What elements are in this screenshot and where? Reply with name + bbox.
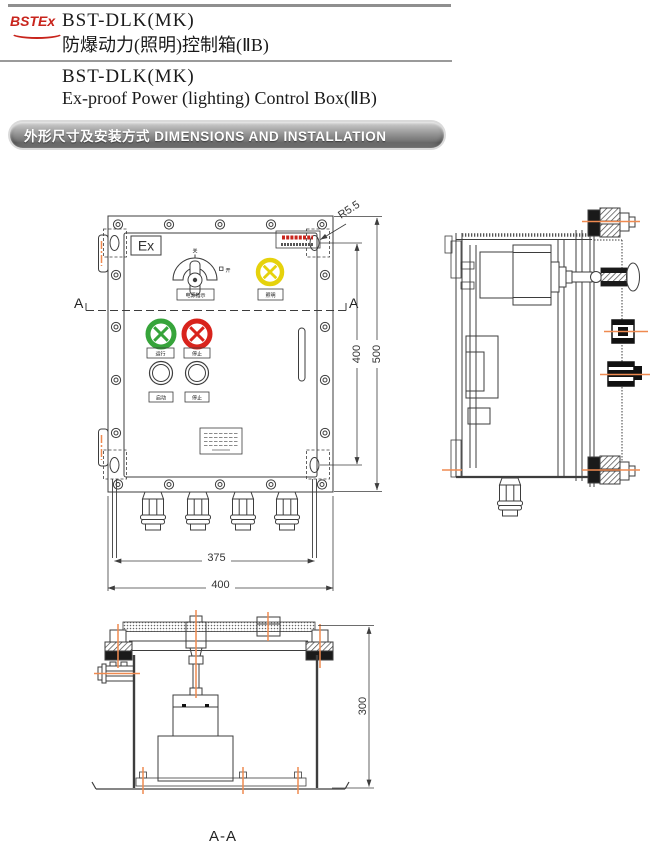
- section-marker-right: A: [349, 295, 359, 311]
- side-switch-assembly: [480, 245, 640, 305]
- push-button-stop: 停止: [185, 362, 209, 403]
- dim-inner-height: 400: [351, 345, 363, 363]
- side-internal-components: [466, 336, 498, 424]
- selector-on-mark: 开: [225, 268, 230, 274]
- lamp-red-label: 停止: [192, 351, 202, 358]
- lamp-green-label: 运行: [155, 351, 165, 358]
- nameplate: [200, 428, 242, 454]
- section-marker-left: A: [74, 295, 84, 311]
- door-slot: [299, 328, 306, 381]
- ex-marking: Ex: [131, 236, 161, 255]
- door-outline: [124, 233, 317, 477]
- selector-label: 电源指示: [185, 292, 205, 299]
- side-view-drawing: [442, 208, 650, 516]
- section-centerlines: [94, 610, 320, 794]
- lamp-yellow-label: 照明: [265, 293, 275, 299]
- technical-drawing: Ex 关 开 电源指示: [0, 0, 650, 856]
- section-view-title: A-A: [209, 828, 237, 845]
- dim-outer-height: 500: [371, 345, 383, 363]
- indicator-lamp-green: 运行: [147, 321, 174, 358]
- section-cut-line: A A: [74, 295, 359, 311]
- side-lamp-assemblies: [608, 320, 642, 386]
- side-bottom-gland: [498, 478, 523, 516]
- dim-depth: 300: [357, 697, 369, 715]
- enclosure-outline: [108, 216, 333, 492]
- dim-inner-width: 375: [207, 552, 225, 564]
- selector-off-mark: 关: [192, 248, 197, 255]
- push-button-start: 启动: [149, 362, 173, 403]
- selector-switch: 关 开 电源指示: [173, 248, 231, 301]
- dim-corner-radius: R5.5: [336, 199, 362, 222]
- button-stop-label: 停止: [192, 395, 202, 402]
- side-door-bolts: [588, 208, 635, 484]
- dim-outer-width: 400: [211, 579, 229, 591]
- ex-marking-text: Ex: [138, 238, 154, 254]
- cable-glands: [141, 492, 300, 530]
- front-view-drawing: Ex 关 开 电源指示: [74, 199, 383, 591]
- warning-plate: [276, 231, 320, 248]
- indicator-lamp-yellow: 照明: [258, 260, 283, 300]
- button-start-label: 启动: [156, 395, 166, 402]
- section-side-gland: [98, 662, 134, 683]
- section-internal-boxes: [136, 695, 306, 786]
- section-view-drawing: 300 A-A: [92, 610, 374, 845]
- hinges: [99, 235, 109, 466]
- section-corner-bolts: [105, 630, 333, 660]
- indicator-lamp-red: 停止: [184, 321, 210, 358]
- section-bottom-rail: [92, 782, 349, 789]
- catalog-page: BSTEx BST-DLK(MK) 防爆动力(照明)控制箱(ⅡB) BST-DL…: [0, 0, 650, 856]
- flange-bolts: [111, 220, 329, 489]
